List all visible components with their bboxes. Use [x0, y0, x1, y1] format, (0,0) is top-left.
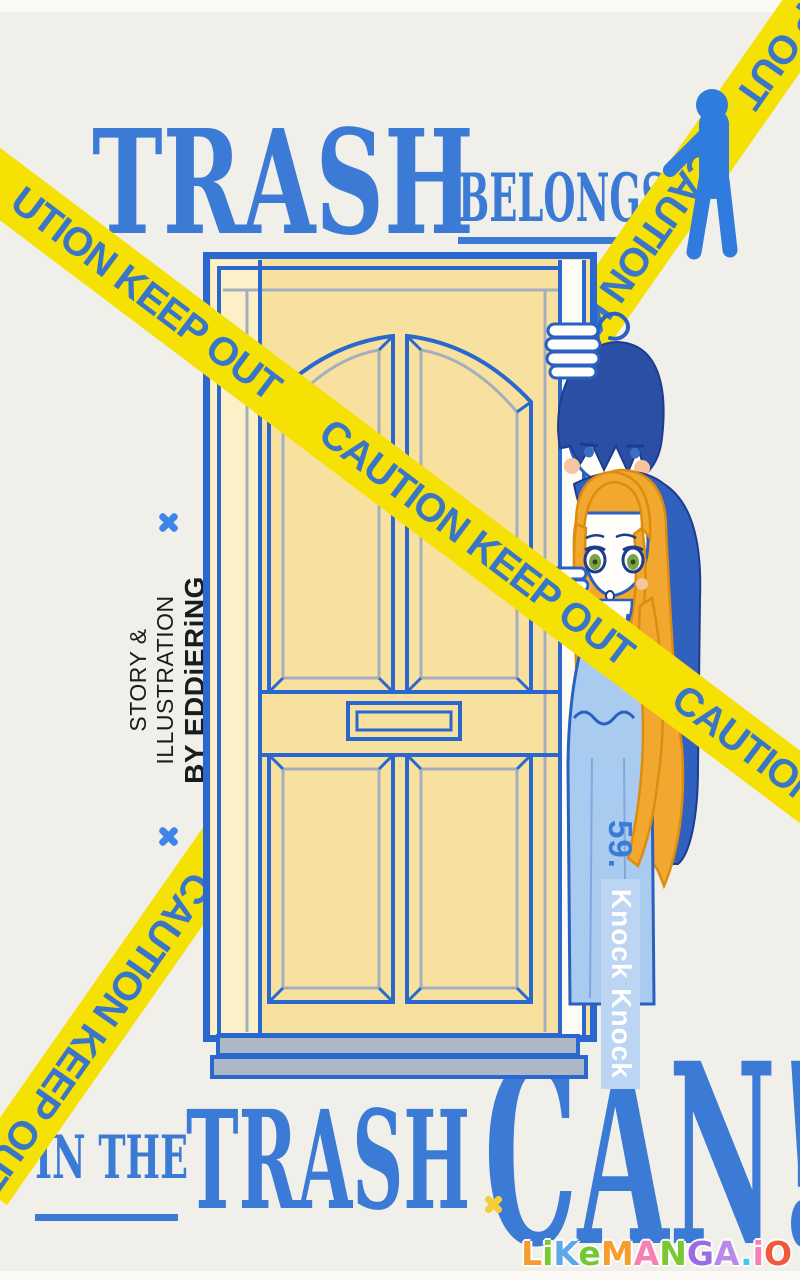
x-mark-icon [155, 824, 181, 850]
watermark-letter: i [542, 1234, 553, 1273]
watermark-letter: K [553, 1234, 578, 1273]
title-word-trash: TRASH [92, 111, 474, 255]
credit-text: STORY & ILLUSTRATION BY EDDiERiNG [125, 554, 211, 806]
watermark-letter: N [659, 1234, 687, 1273]
small-x-mark-icon [482, 1193, 506, 1217]
watermark-letter: O [764, 1234, 792, 1273]
chapter-number: 59. [602, 820, 640, 869]
page-top-margin [0, 0, 800, 12]
watermark-letter: . [740, 1234, 753, 1273]
watermark-letter: A [714, 1234, 740, 1273]
title-page: TRASH BELONGS CAUTION KEEP OUT CAUTION K… [0, 0, 800, 1280]
watermark-letter: M [601, 1234, 634, 1273]
chapter-title: Knock Knock [601, 879, 640, 1089]
title-word-in-the: IN THE [35, 1128, 188, 1188]
x-mark-icon [155, 510, 181, 536]
watermark-letter: i [753, 1234, 764, 1273]
title-word-trash-2: TRASH [186, 1093, 470, 1229]
door-threshold-step [216, 1034, 580, 1057]
watermark-letter: e [578, 1234, 600, 1273]
watermark-letter: A [634, 1234, 660, 1273]
watermark-letter: L [521, 1234, 542, 1273]
door-threshold-base [210, 1055, 588, 1079]
credit-role: STORY & ILLUSTRATION [125, 554, 179, 806]
person-pictogram-icon [648, 88, 752, 264]
in-the-underline [35, 1214, 178, 1221]
site-watermark: LiKeMANGA.iO [500, 1234, 792, 1273]
credit-block: STORY & ILLUSTRATION BY EDDiERiNG [125, 510, 211, 850]
chapter-label: 59. Knock Knock [601, 820, 640, 1070]
watermark-letter: G [687, 1234, 714, 1273]
